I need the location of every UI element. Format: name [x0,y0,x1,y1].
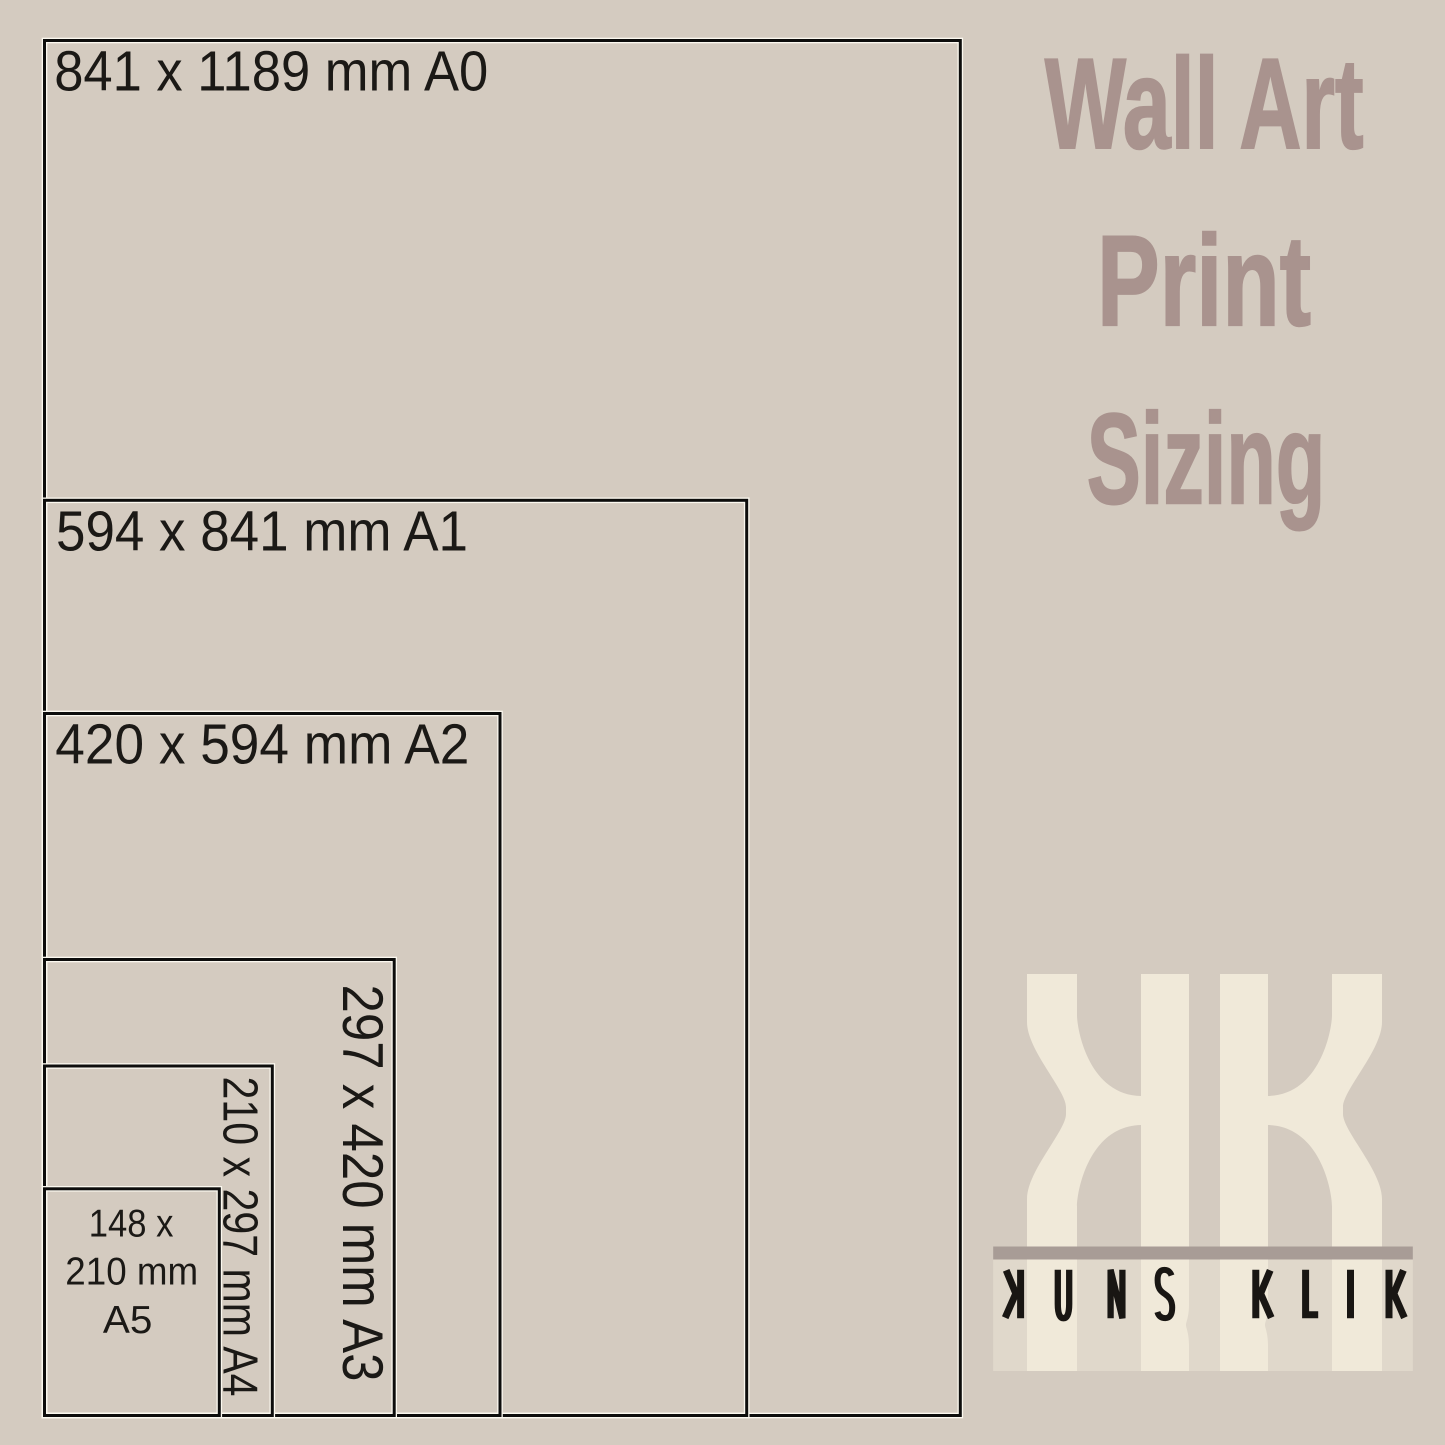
svg-text:420 x 594 mm A2: 420 x 594 mm A2 [55,712,469,775]
svg-text:Sizing: Sizing [1087,387,1326,531]
svg-text:297 x 420 mm A3: 297 x 420 mm A3 [330,985,394,1382]
svg-text:210 mm: 210 mm [65,1250,198,1294]
svg-text:210 x 297 mm A4: 210 x 297 mm A4 [213,1077,268,1397]
svg-text:148 x: 148 x [89,1202,174,1246]
svg-text:A5: A5 [103,1298,152,1342]
svg-text:841 x 1189 mm A0: 841 x 1189 mm A0 [54,39,488,102]
svg-text:Print: Print [1097,209,1311,353]
svg-text:594 x 841 mm A1: 594 x 841 mm A1 [56,499,468,562]
svg-text:Wall Art: Wall Art [1045,32,1364,176]
